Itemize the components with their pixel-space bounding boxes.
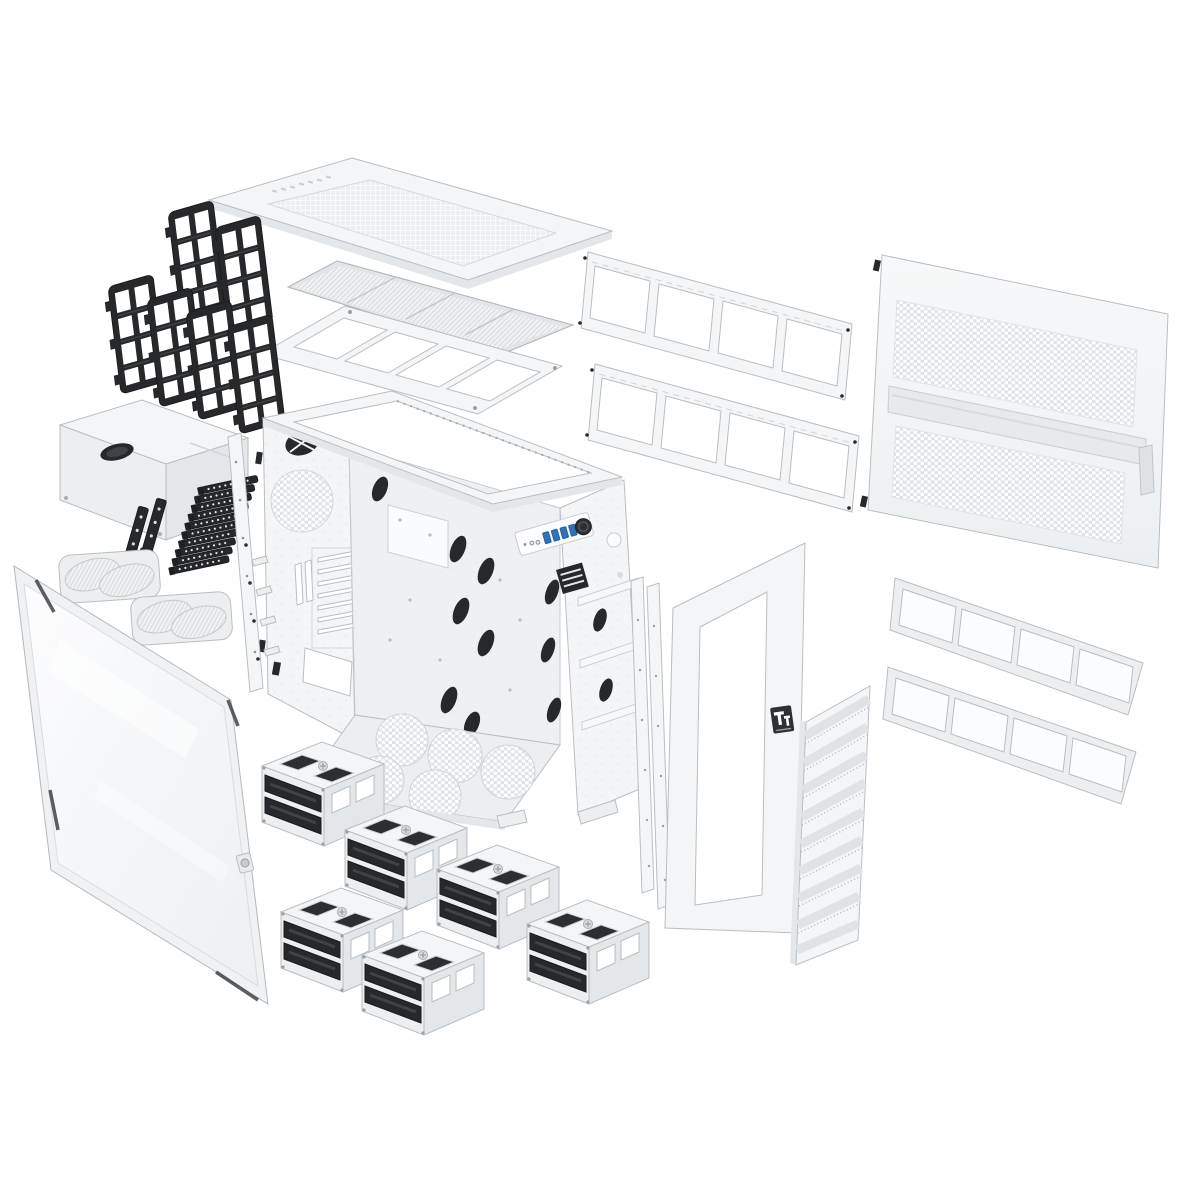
audio-jack	[536, 540, 541, 545]
thermaltake-logo	[770, 705, 794, 734]
side-panel-latch	[1139, 445, 1154, 495]
front-bezel-opening	[695, 592, 767, 905]
front-bezel: Front panel frame with Tt badge	[665, 543, 805, 933]
front-mesh-strip: Front ventilation mesh strip	[790, 686, 870, 965]
audio-jack	[529, 541, 534, 546]
support-rails: Vertical support rails × 2	[631, 577, 670, 909]
rear-fan-vent	[271, 470, 333, 532]
exploded-diagram: Top cover panel (perforated) Top magneti…	[0, 0, 1200, 1200]
top-panel: Top cover panel (perforated)	[209, 158, 612, 289]
fan-mounting-frames: Fan mounting frames × 6 (black)	[103, 200, 285, 435]
exploded-view-canvas: Top cover panel (perforated) Top magneti…	[0, 0, 1200, 1200]
slide-in-filters: Slide-in dust filters × 2	[883, 578, 1143, 804]
side-panel: Ventilated steel side panel	[860, 255, 1168, 568]
